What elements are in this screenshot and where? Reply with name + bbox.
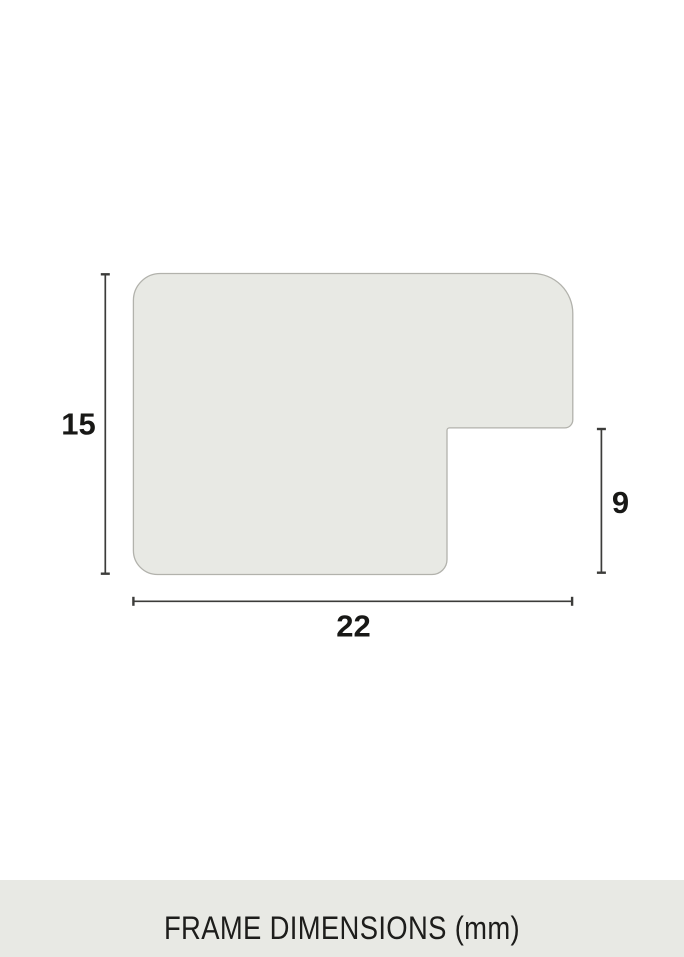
svg-text:22: 22 bbox=[336, 609, 370, 644]
svg-text:15: 15 bbox=[61, 407, 95, 442]
svg-text:9: 9 bbox=[612, 485, 629, 520]
